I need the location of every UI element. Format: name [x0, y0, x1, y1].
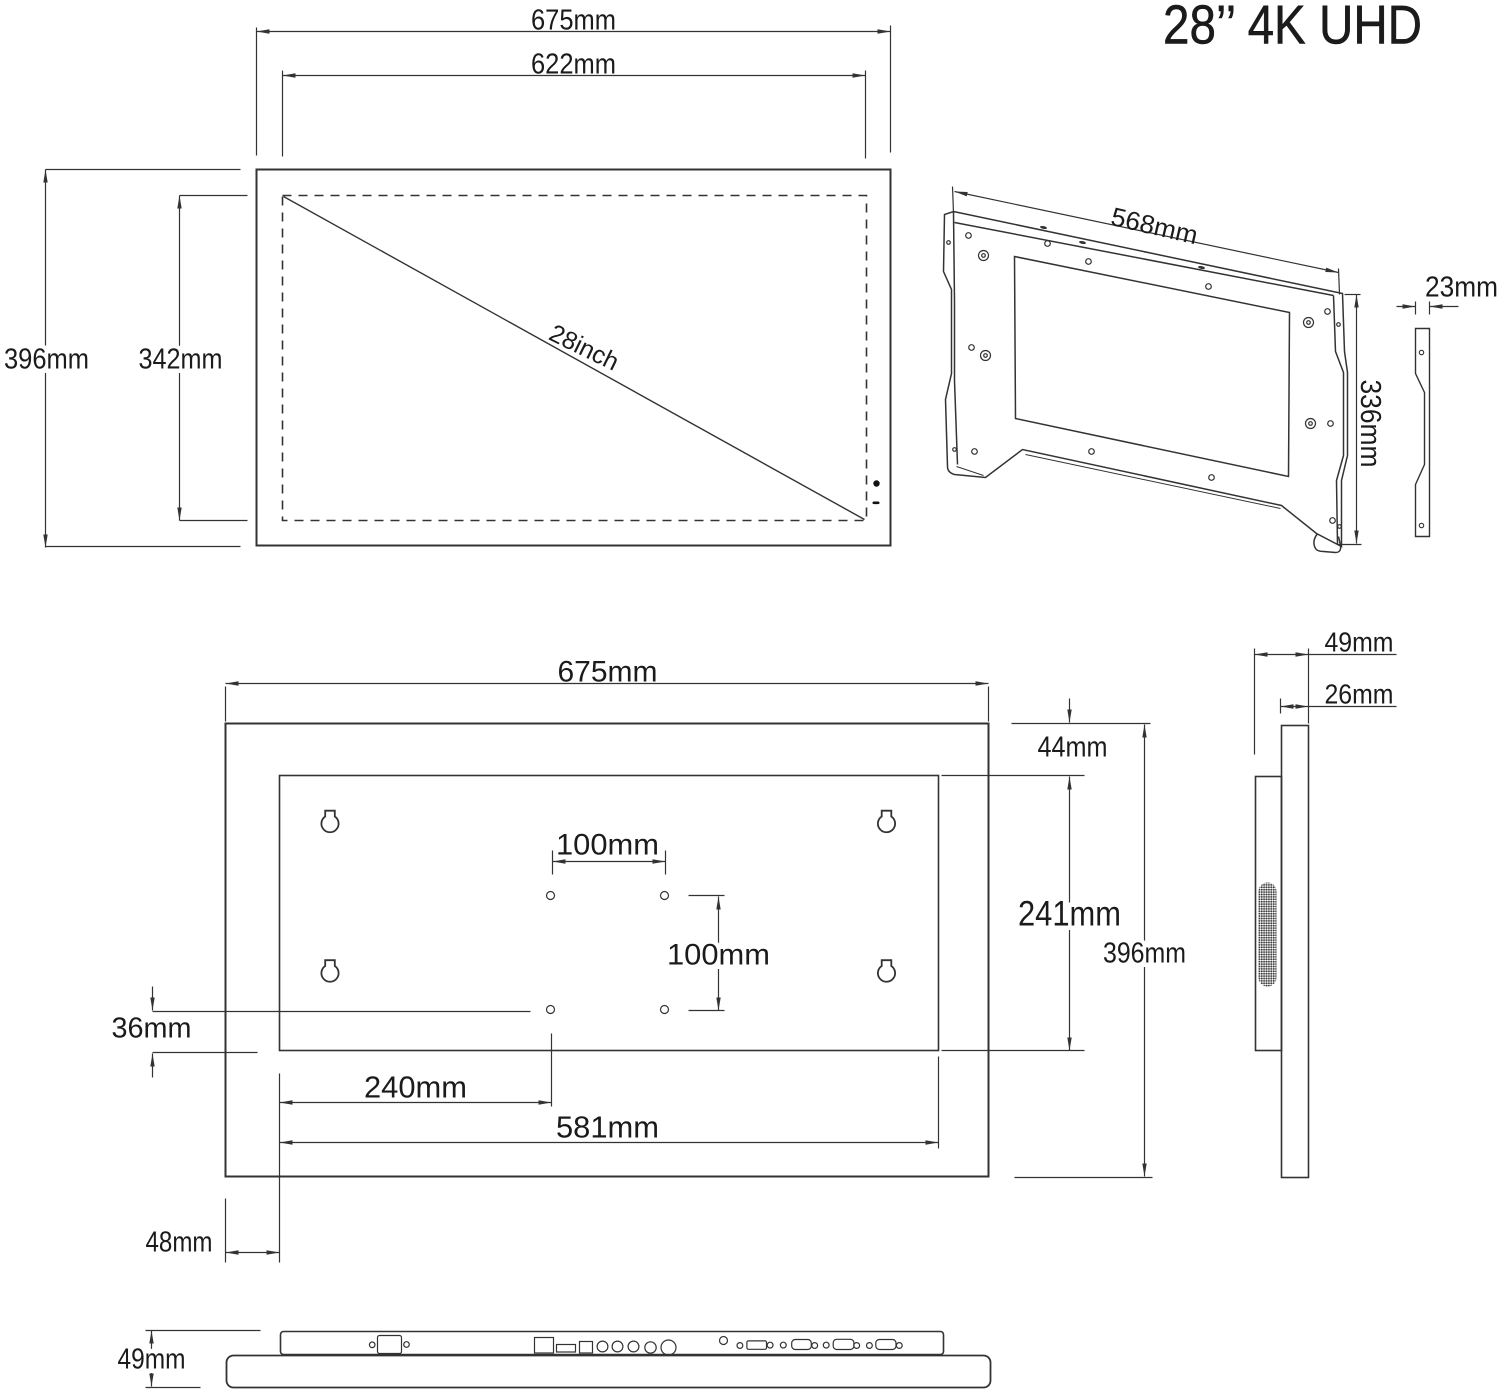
- svg-text:396mm: 396mm: [1103, 938, 1186, 970]
- svg-text:622mm: 622mm: [531, 49, 616, 81]
- svg-text:36mm: 36mm: [112, 1013, 192, 1045]
- svg-text:342mm: 342mm: [139, 344, 223, 376]
- svg-text:28’’ 4K UHD: 28’’ 4K UHD: [1163, 0, 1422, 56]
- svg-text:49mm: 49mm: [1325, 627, 1394, 658]
- svg-text:100mm: 100mm: [667, 939, 770, 972]
- svg-text:581mm: 581mm: [556, 1110, 659, 1145]
- svg-text:240mm: 240mm: [364, 1070, 467, 1105]
- svg-text:241mm: 241mm: [1018, 895, 1121, 934]
- svg-text:44mm: 44mm: [1038, 732, 1108, 764]
- svg-text:100mm: 100mm: [556, 829, 659, 862]
- svg-text:49mm: 49mm: [118, 1344, 186, 1376]
- svg-text:396mm: 396mm: [4, 344, 89, 376]
- svg-text:675mm: 675mm: [531, 5, 616, 37]
- svg-text:26mm: 26mm: [1325, 679, 1394, 710]
- svg-text:675mm: 675mm: [558, 656, 658, 689]
- svg-text:336mm: 336mm: [1354, 380, 1386, 468]
- svg-text:48mm: 48mm: [146, 1227, 213, 1259]
- svg-text:23mm: 23mm: [1425, 272, 1498, 304]
